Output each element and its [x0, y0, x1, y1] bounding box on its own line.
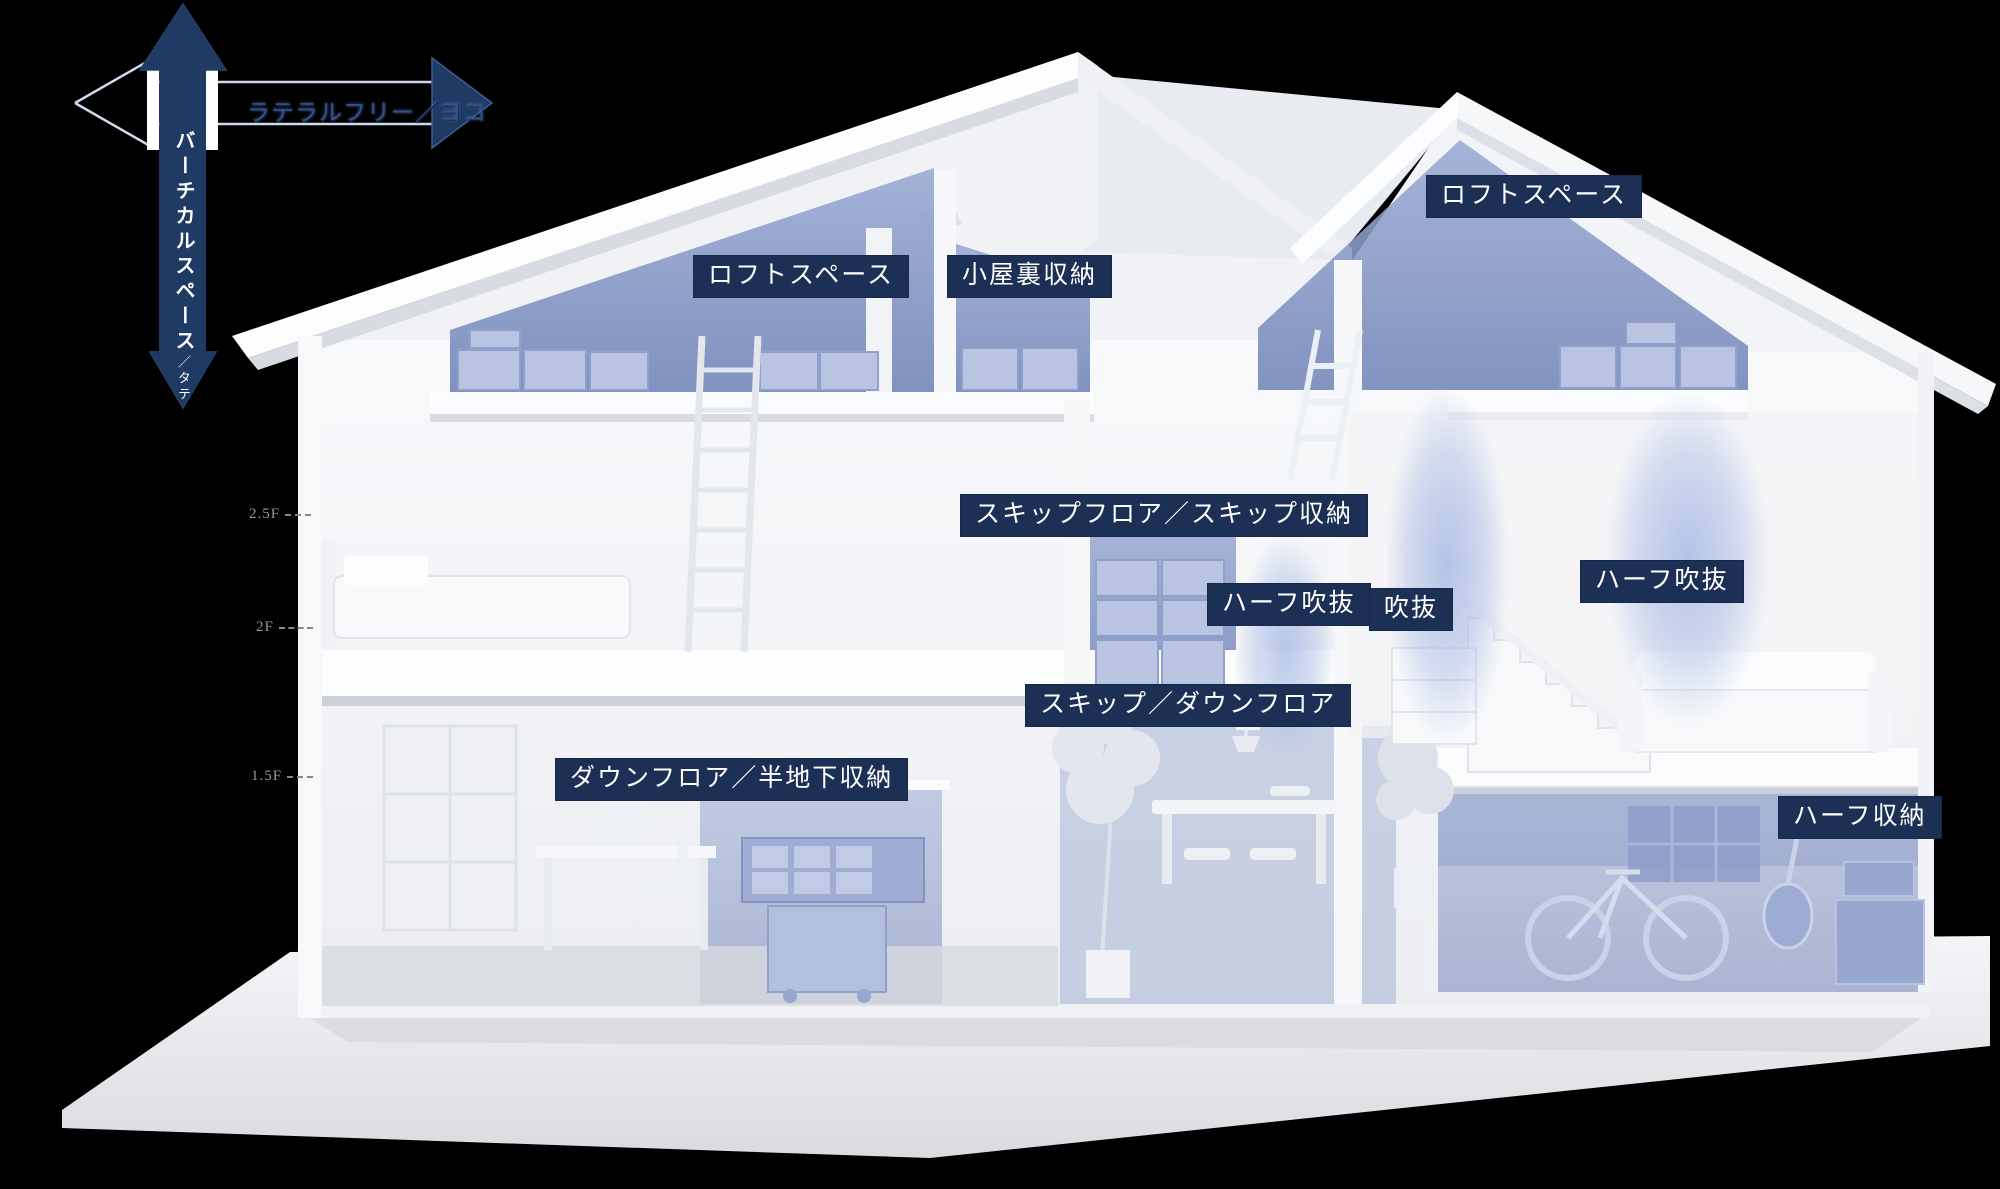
page: { "axis": { "vertical_label": "バーチカルスペース… — [0, 0, 2000, 1189]
zone-label-down-floor: ダウンフロア／半地下収納 — [556, 759, 907, 800]
zone-label-skip-down-floor: スキップ／ダウンフロア — [1026, 685, 1350, 726]
zone-label-void: 吹抜 — [1370, 589, 1452, 630]
floor-marker-1-5f-text: 1.5F — [251, 768, 282, 785]
zone-label-half-void-right: ハーフ吹抜 — [1581, 561, 1743, 602]
floor-marker-2-5f: 2.5F — [249, 506, 311, 523]
floor-marker-1-5f: 1.5F — [251, 768, 313, 785]
zone-label-loft-right: ロフトスペース — [1427, 176, 1641, 217]
zone-label-skip-floor: スキップフロア／スキップ収納 — [961, 495, 1367, 536]
zone-label-attic-storage: 小屋裏収納 — [948, 256, 1111, 297]
floor-marker-2-5f-text: 2.5F — [249, 506, 280, 523]
vertical-axis-label: バーチカルスペース／タテ — [169, 130, 198, 403]
zone-label-half-storage: ハーフ収納 — [1779, 797, 1941, 838]
vertical-axis-label-suffix: ／タテ — [176, 355, 191, 403]
floor-marker-dash-line — [287, 776, 313, 778]
vertical-axis-label-text: バーチカルスペース — [172, 130, 194, 355]
floor-marker-dash-line — [285, 514, 311, 516]
zone-label-loft-left: ロフトスペース — [694, 256, 908, 297]
zone-label-half-void-left: ハーフ吹抜 — [1208, 584, 1370, 625]
floor-marker-2f: 2F — [256, 619, 313, 636]
floor-marker-2f-text: 2F — [256, 619, 274, 636]
horizontal-axis-label: ラテラルフリー／ヨコ — [247, 93, 487, 127]
floor-marker-dash-line — [279, 627, 313, 629]
